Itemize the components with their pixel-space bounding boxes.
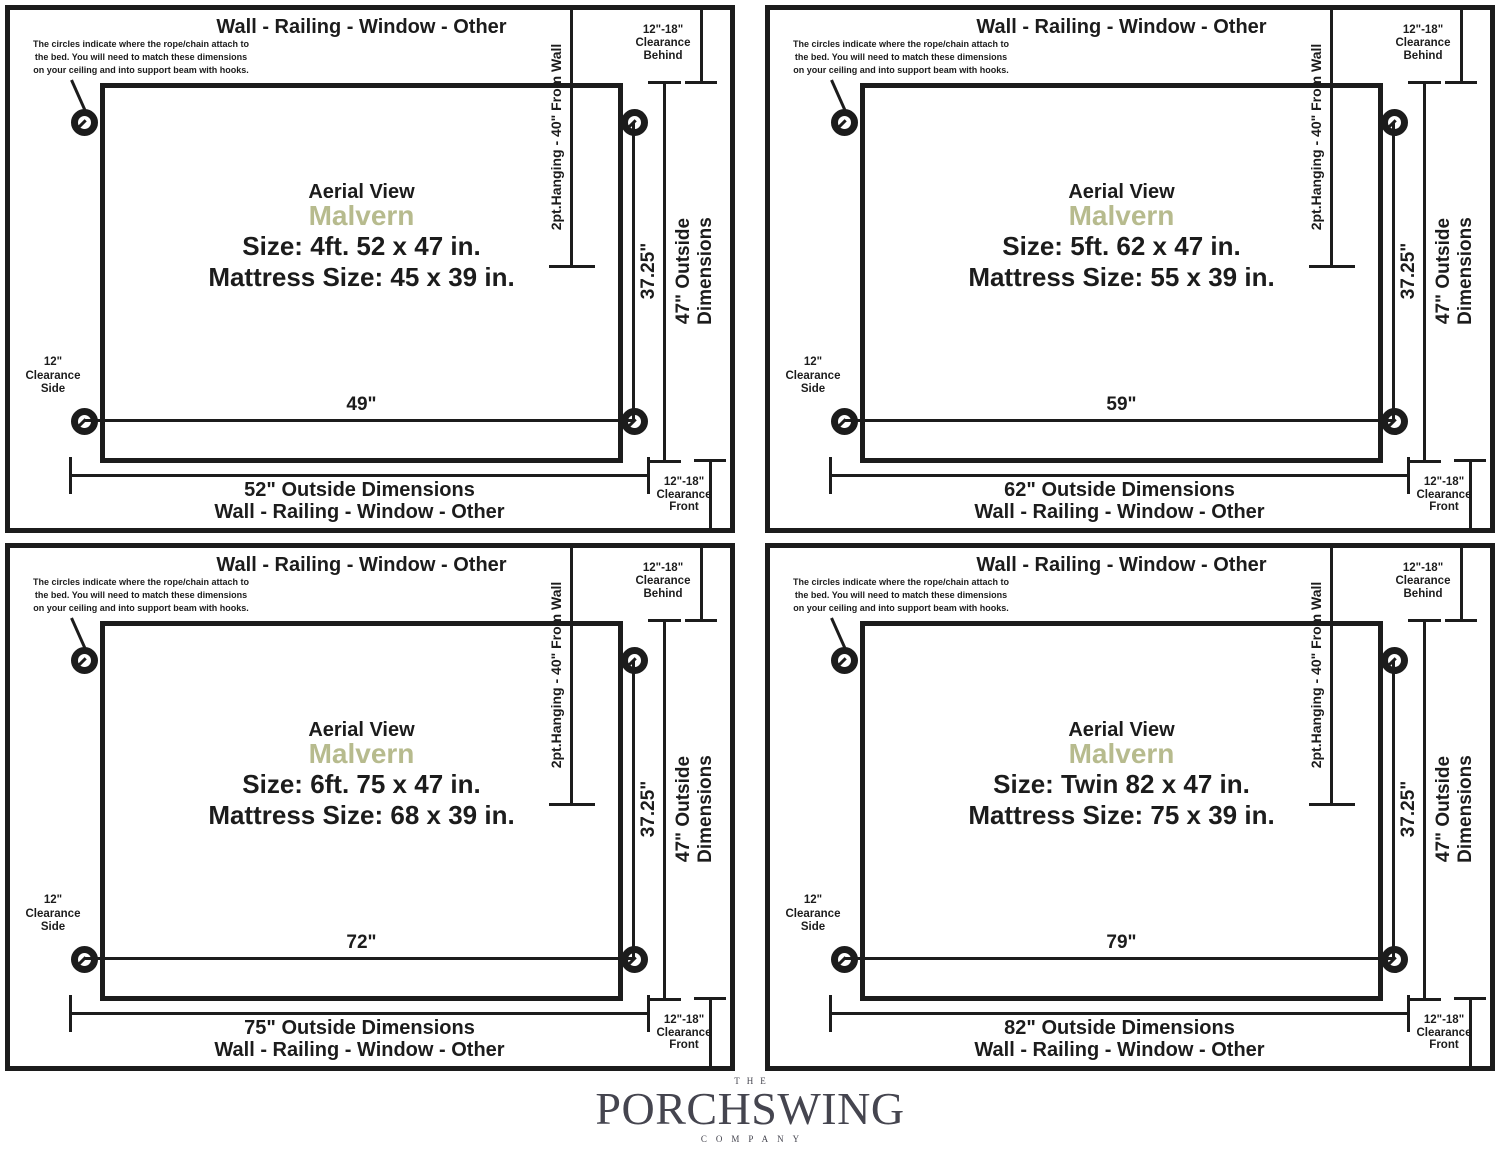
clearance-behind-label: 12"-18" Clearance Behind (611, 24, 715, 63)
clearance-side-line1: 12" (773, 356, 853, 370)
size-diagram-panel: Wall - Railing - Window - Other The circ… (765, 5, 1495, 533)
hook-notch (78, 119, 86, 127)
wall-label-bottom: Wall - Railing - Window - Other (829, 500, 1410, 524)
clearance-behind-label: 12"-18" Clearance Behind (1371, 24, 1475, 63)
hang-points-horizontal-line (84, 957, 634, 960)
rope-chain-note: The circles indicate where the rope/chai… (773, 38, 1029, 77)
clearance-behind-line1: 12"-18" (611, 24, 715, 37)
hang-point-circle-top-left (831, 109, 858, 136)
clearance-front-tick (694, 459, 726, 462)
clearance-side-line2: Clearance (773, 370, 853, 384)
size-label: Size: 4ft. 52 x 47 in. (100, 231, 623, 262)
outside-depth-label-line: Dimensions (695, 755, 717, 863)
outside-depth-line (1423, 621, 1426, 1001)
outside-width-line (829, 474, 1410, 477)
clearance-behind-line2: Clearance (611, 575, 715, 588)
hook-notch (838, 119, 846, 127)
clearance-front-tick (694, 997, 726, 1000)
porch-swing-size-sheet: Wall - Railing - Window - Other The circ… (0, 0, 1500, 1159)
outside-depth-line (663, 83, 666, 463)
hang-depth-label: 37.25" (1399, 769, 1419, 849)
note-line: the bed. You will need to match these di… (773, 51, 1029, 64)
outside-depth-tick-bottom (648, 460, 681, 463)
hang-points-vertical-line (632, 122, 635, 421)
wall-label-top: Wall - Railing - Window - Other (860, 15, 1383, 39)
hang-depth-label: 37.25" (639, 231, 659, 311)
brand-logo: THE PORCHSWING COMPANY (0, 1076, 1500, 1144)
outside-width-label: 82" Outside Dimensions (829, 1017, 1410, 1040)
clearance-behind-line1: 12"-18" (1371, 24, 1475, 37)
clearance-behind-line3: Behind (1371, 50, 1475, 63)
clearance-side-line1: 12" (13, 356, 93, 370)
clearance-behind-tick (1445, 81, 1477, 84)
outside-depth-tick-bottom (1408, 998, 1441, 1001)
outside-width-label: 62" Outside Dimensions (829, 479, 1410, 502)
wall-label-top: Wall - Railing - Window - Other (100, 15, 623, 39)
outside-depth-line (1423, 83, 1426, 463)
clearance-side-line3: Side (13, 921, 93, 935)
outside-depth-tick-bottom (1408, 460, 1441, 463)
hang-points-horizontal-line (844, 419, 1394, 422)
outside-depth-label-line: Dimensions (1455, 755, 1477, 863)
clearance-side-line2: Clearance (13, 370, 93, 384)
clearance-side-label: 12" Clearance Side (13, 894, 93, 935)
outside-width-label: 52" Outside Dimensions (69, 479, 650, 502)
note-line: on your ceiling and into support beam wi… (13, 602, 269, 615)
hook-notch (838, 657, 846, 665)
size-diagram-panel: Wall - Railing - Window - Other The circ… (5, 5, 735, 533)
wall-label-top: Wall - Railing - Window - Other (860, 553, 1383, 577)
rope-chain-note: The circles indicate where the rope/chai… (13, 38, 269, 77)
clearance-side-line3: Side (773, 921, 853, 935)
note-line: on your ceiling and into support beam wi… (13, 64, 269, 77)
clearance-behind-line2: Clearance (611, 37, 715, 50)
model-name-label: Malvern (860, 200, 1383, 232)
clearance-side-line2: Clearance (13, 908, 93, 922)
size-label: Size: Twin 82 x 47 in. (860, 769, 1383, 800)
note-line: The circles indicate where the rope/chai… (773, 576, 1029, 589)
hang-point-circle-top-left (831, 647, 858, 674)
note-line: the bed. You will need to match these di… (13, 589, 269, 602)
outside-depth-line (663, 621, 666, 1001)
hang-points-horizontal-line (844, 957, 1394, 960)
outside-width-line (829, 1012, 1410, 1015)
size-label: Size: 5ft. 62 x 47 in. (860, 231, 1383, 262)
note-line: The circles indicate where the rope/chai… (13, 576, 269, 589)
outside-depth-label: 47" Outside Dimensions (1432, 744, 1478, 874)
hang-point-circle-top-left (71, 647, 98, 674)
hang-width-label: 79" (860, 932, 1383, 954)
wall-label-bottom: Wall - Railing - Window - Other (69, 1038, 650, 1062)
outside-width-line (69, 474, 650, 477)
clearance-side-line1: 12" (13, 894, 93, 908)
clearance-side-label: 12" Clearance Side (773, 894, 853, 935)
hang-width-label: 49" (100, 394, 623, 416)
note-line: the bed. You will need to match these di… (773, 589, 1029, 602)
wall-label-bottom: Wall - Railing - Window - Other (829, 1038, 1410, 1062)
note-line: on your ceiling and into support beam wi… (773, 602, 1029, 615)
hook-notch (78, 657, 86, 665)
clearance-behind-tick (685, 619, 717, 622)
outside-depth-label: 47" Outside Dimensions (1432, 206, 1478, 336)
note-line: The circles indicate where the rope/chai… (13, 38, 269, 51)
outside-depth-label: 47" Outside Dimensions (672, 744, 718, 874)
outside-depth-tick-top (648, 619, 681, 622)
size-diagram-panel: Wall - Railing - Window - Other The circ… (5, 543, 735, 1071)
clearance-behind-line3: Behind (611, 50, 715, 63)
model-name-label: Malvern (100, 200, 623, 232)
clearance-behind-label: 12"-18" Clearance Behind (1371, 562, 1475, 601)
outside-depth-label: 47" Outside Dimensions (672, 206, 718, 336)
rope-chain-note: The circles indicate where the rope/chai… (13, 576, 269, 615)
outside-depth-tick-top (1408, 81, 1441, 84)
logo-brand-name: PORCHSWING (0, 1086, 1500, 1132)
mattress-size-label: Mattress Size: 68 x 39 in. (100, 800, 623, 831)
hang-depth-label: 37.25" (1399, 231, 1419, 311)
clearance-behind-tick (685, 81, 717, 84)
hang-point-circle-top-left (71, 109, 98, 136)
clearance-side-line3: Side (13, 383, 93, 397)
clearance-behind-label: 12"-18" Clearance Behind (611, 562, 715, 601)
outside-depth-label-line: Dimensions (695, 217, 717, 325)
clearance-behind-line1: 12"-18" (1371, 562, 1475, 575)
wall-label-top: Wall - Railing - Window - Other (100, 553, 623, 577)
clearance-behind-line2: Clearance (1371, 37, 1475, 50)
hang-width-label: 72" (100, 932, 623, 954)
wall-label-bottom: Wall - Railing - Window - Other (69, 500, 650, 524)
note-line: on your ceiling and into support beam wi… (773, 64, 1029, 77)
mattress-size-label: Mattress Size: 75 x 39 in. (860, 800, 1383, 831)
hang-depth-label: 37.25" (639, 769, 659, 849)
hang-points-vertical-line (1392, 122, 1395, 421)
outside-depth-tick-bottom (648, 998, 681, 1001)
model-name-label: Malvern (860, 738, 1383, 770)
panels-grid: Wall - Railing - Window - Other The circ… (5, 5, 1495, 1071)
size-diagram-panel: Wall - Railing - Window - Other The circ… (765, 543, 1495, 1071)
clearance-behind-line3: Behind (1371, 588, 1475, 601)
hang-points-vertical-line (632, 660, 635, 959)
outside-depth-tick-top (648, 81, 681, 84)
outside-depth-label-line: 47" Outside (673, 756, 695, 862)
note-line: the bed. You will need to match these di… (13, 51, 269, 64)
clearance-side-label: 12" Clearance Side (13, 356, 93, 397)
clearance-behind-line1: 12"-18" (611, 562, 715, 575)
note-line: The circles indicate where the rope/chai… (773, 38, 1029, 51)
hang-width-label: 59" (860, 394, 1383, 416)
model-name-label: Malvern (100, 738, 623, 770)
mattress-size-label: Mattress Size: 55 x 39 in. (860, 262, 1383, 293)
clearance-behind-line3: Behind (611, 588, 715, 601)
outside-depth-label-line: 47" Outside (1433, 756, 1455, 862)
clearance-side-line1: 12" (773, 894, 853, 908)
outside-width-line (69, 1012, 650, 1015)
logo-company-label: COMPANY (0, 1134, 1500, 1144)
clearance-front-tick (1454, 997, 1486, 1000)
hang-points-horizontal-line (84, 419, 634, 422)
clearance-front-tick (1454, 459, 1486, 462)
size-label: Size: 6ft. 75 x 47 in. (100, 769, 623, 800)
hang-points-vertical-line (1392, 660, 1395, 959)
outside-depth-tick-top (1408, 619, 1441, 622)
clearance-behind-tick (1445, 619, 1477, 622)
mattress-size-label: Mattress Size: 45 x 39 in. (100, 262, 623, 293)
outside-depth-label-line: 47" Outside (673, 218, 695, 324)
clearance-side-line3: Side (773, 383, 853, 397)
outside-depth-label-line: Dimensions (1455, 217, 1477, 325)
outside-width-label: 75" Outside Dimensions (69, 1017, 650, 1040)
outside-depth-label-line: 47" Outside (1433, 218, 1455, 324)
clearance-side-label: 12" Clearance Side (773, 356, 853, 397)
rope-chain-note: The circles indicate where the rope/chai… (773, 576, 1029, 615)
clearance-side-line2: Clearance (773, 908, 853, 922)
clearance-behind-line2: Clearance (1371, 575, 1475, 588)
